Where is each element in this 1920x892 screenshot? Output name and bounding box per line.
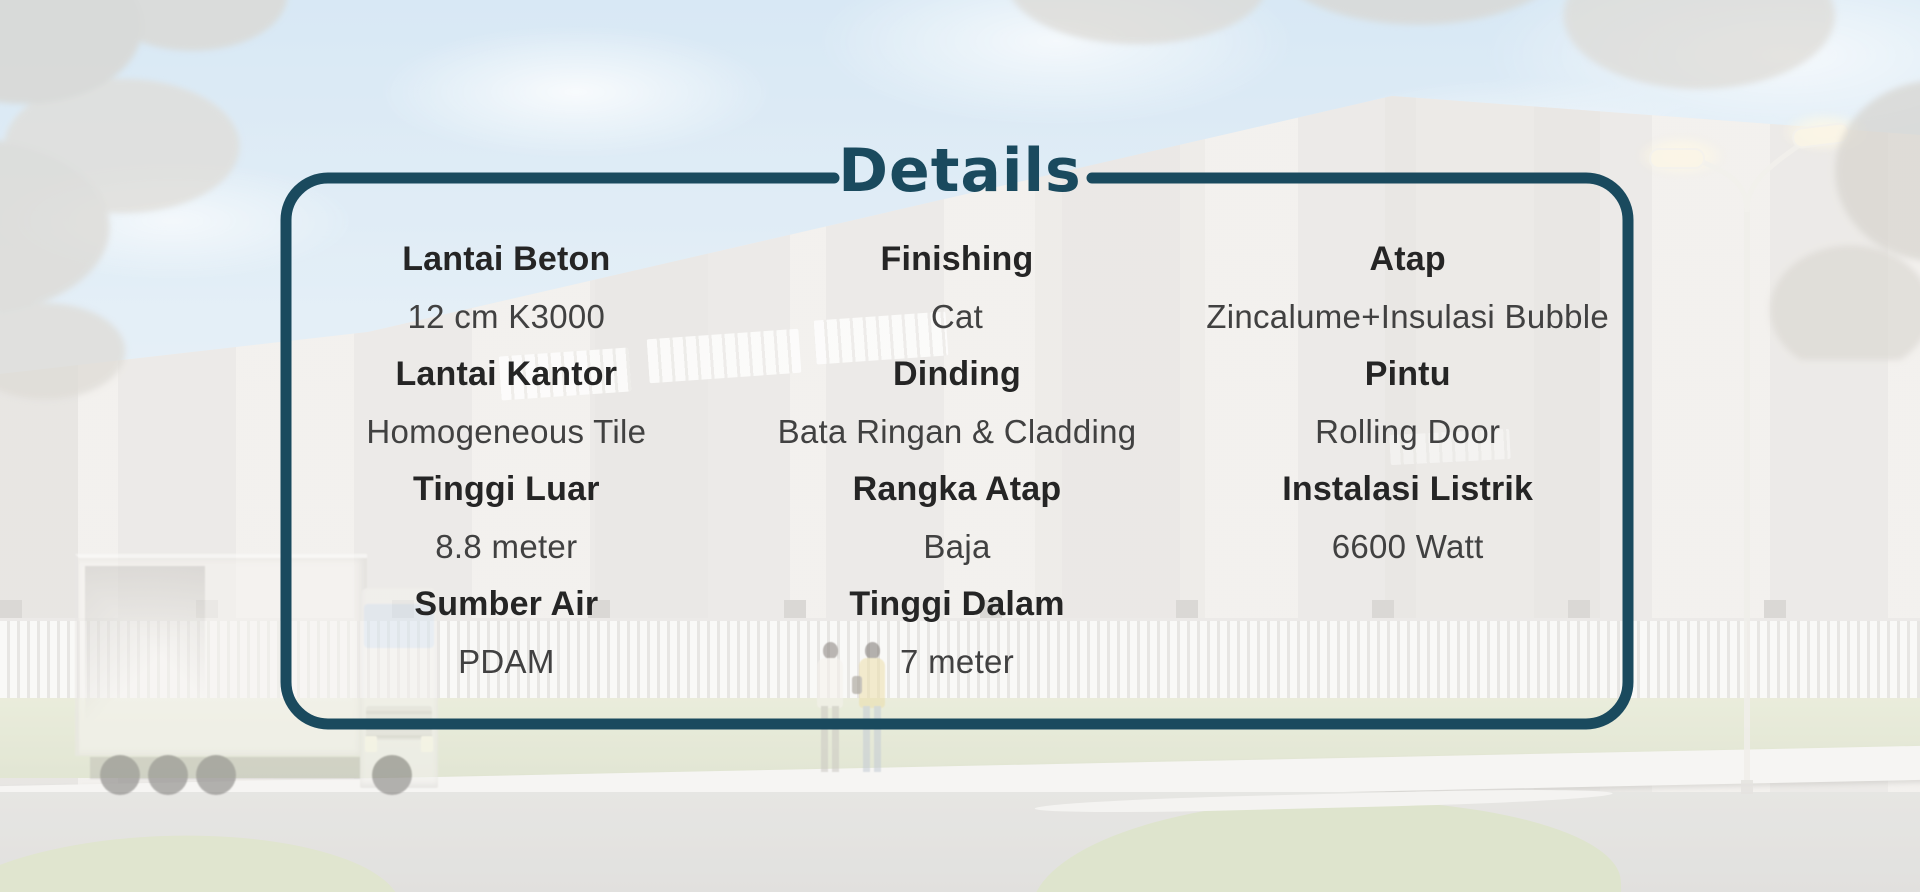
promo-graphic: Details Lantai Beton 12 cm K3000 Lantai …: [0, 0, 1920, 892]
spec-label: Atap: [1370, 231, 1446, 289]
spec-column-3: Atap Zincalume+Insulasi Bubble Pintu Rol…: [1182, 231, 1633, 727]
spec-label: Lantai Beton: [402, 231, 610, 289]
spec-label: Tinggi Dalam: [849, 576, 1064, 634]
spec-value: 8.8 meter: [435, 519, 577, 577]
spec-value: 12 cm K3000: [407, 289, 605, 347]
spec-value: Rolling Door: [1315, 404, 1500, 462]
spec-value: Cat: [931, 289, 983, 347]
spec-column-2: Finishing Cat Dinding Bata Ringan & Clad…: [732, 231, 1183, 727]
spec-value: Baja: [923, 519, 990, 577]
spec-label: Instalasi Listrik: [1282, 461, 1533, 519]
spec-label: Rangka Atap: [853, 461, 1062, 519]
spec-label: Tinggi Luar: [413, 461, 600, 519]
spec-label: Lantai Kantor: [395, 346, 617, 404]
spec-label: Sumber Air: [414, 576, 598, 634]
spec-value: Bata Ringan & Cladding: [778, 404, 1137, 462]
spec-label: Finishing: [881, 231, 1034, 289]
spec-value: 7 meter: [900, 634, 1014, 692]
spec-value: PDAM: [458, 634, 555, 692]
details-card: Lantai Beton 12 cm K3000 Lantai Kantor H…: [281, 175, 1633, 727]
spec-column-1: Lantai Beton 12 cm K3000 Lantai Kantor H…: [281, 231, 732, 727]
spec-value: Zincalume+Insulasi Bubble: [1206, 289, 1609, 347]
spec-value: Homogeneous Tile: [366, 404, 646, 462]
spec-label: Dinding: [893, 346, 1021, 404]
spec-label: Pintu: [1365, 346, 1451, 404]
spec-value: 6600 Watt: [1332, 519, 1484, 577]
